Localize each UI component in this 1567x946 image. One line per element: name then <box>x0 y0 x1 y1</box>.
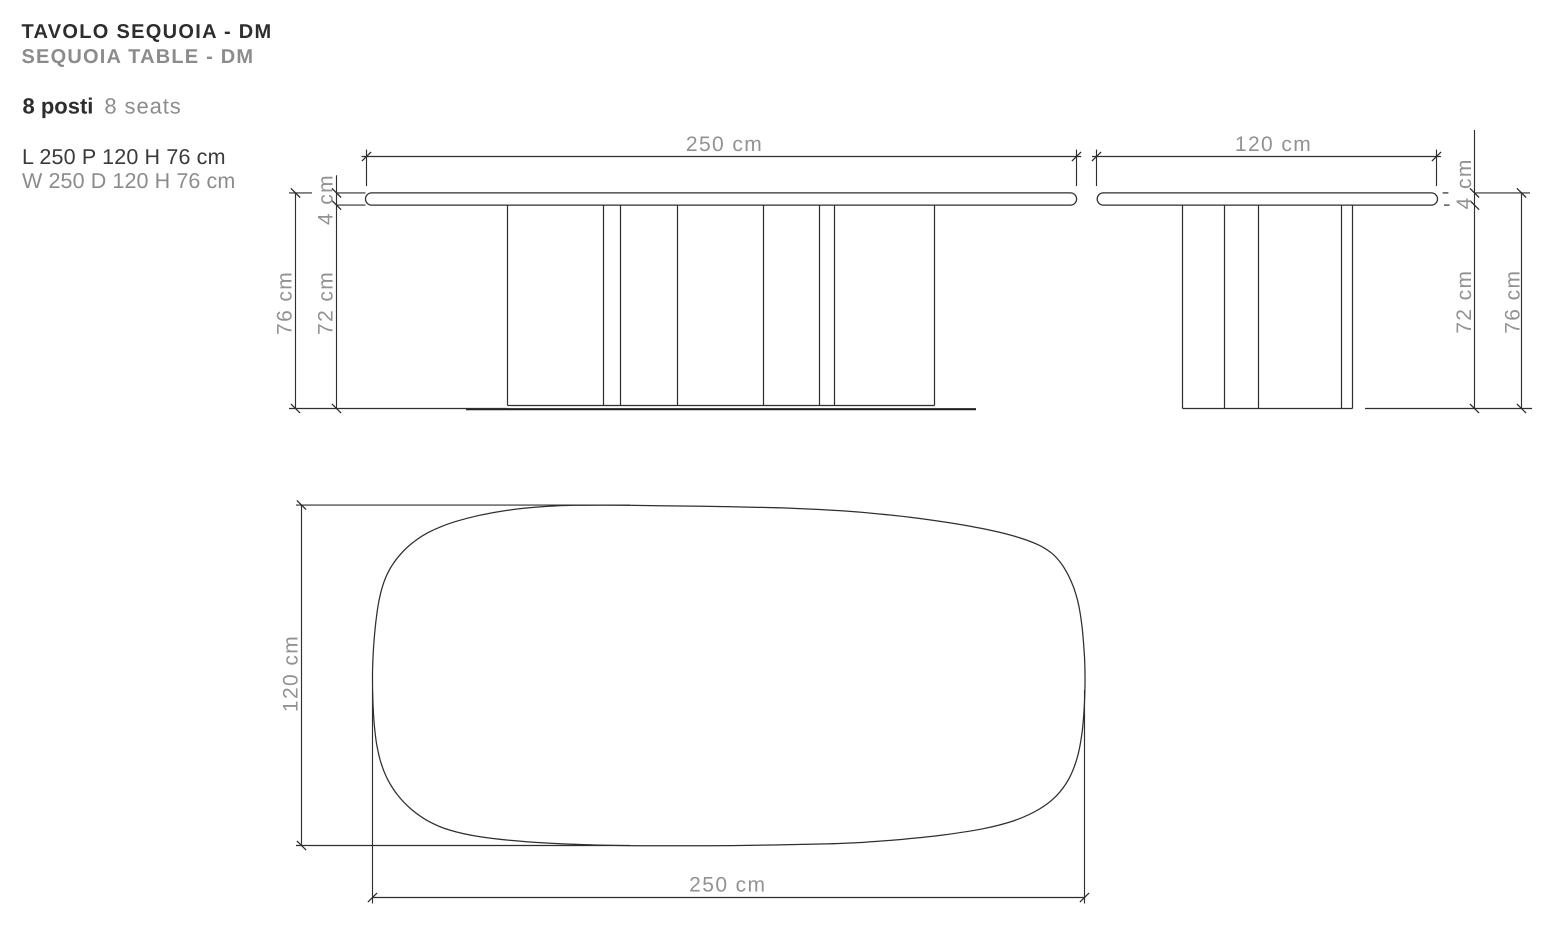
svg-text:76 cm: 76 cm <box>273 271 296 335</box>
svg-text:L 250 P 120 H 76 cm: L 250 P 120 H 76 cm <box>22 145 226 169</box>
svg-text:250 cm: 250 cm <box>689 874 766 897</box>
svg-text:4 cm: 4 cm <box>1453 158 1476 209</box>
svg-text:8 seats: 8 seats <box>104 93 181 118</box>
svg-text:120 cm: 120 cm <box>280 635 303 712</box>
svg-text:72 cm: 72 cm <box>315 271 338 335</box>
svg-text:W 250 D 120 H 76 cm: W 250 D 120 H 76 cm <box>22 169 235 193</box>
svg-text:SEQUOIA TABLE - DM: SEQUOIA TABLE - DM <box>22 46 255 68</box>
svg-text:4 cm: 4 cm <box>315 174 338 225</box>
svg-text:250 cm: 250 cm <box>686 133 763 156</box>
svg-text:TAVOLO SEQUOIA - DM: TAVOLO SEQUOIA - DM <box>22 21 273 43</box>
svg-text:120 cm: 120 cm <box>1235 133 1312 156</box>
svg-text:76 cm: 76 cm <box>1502 270 1525 334</box>
svg-text:72 cm: 72 cm <box>1453 270 1476 334</box>
svg-text:8 posti: 8 posti <box>23 93 94 118</box>
